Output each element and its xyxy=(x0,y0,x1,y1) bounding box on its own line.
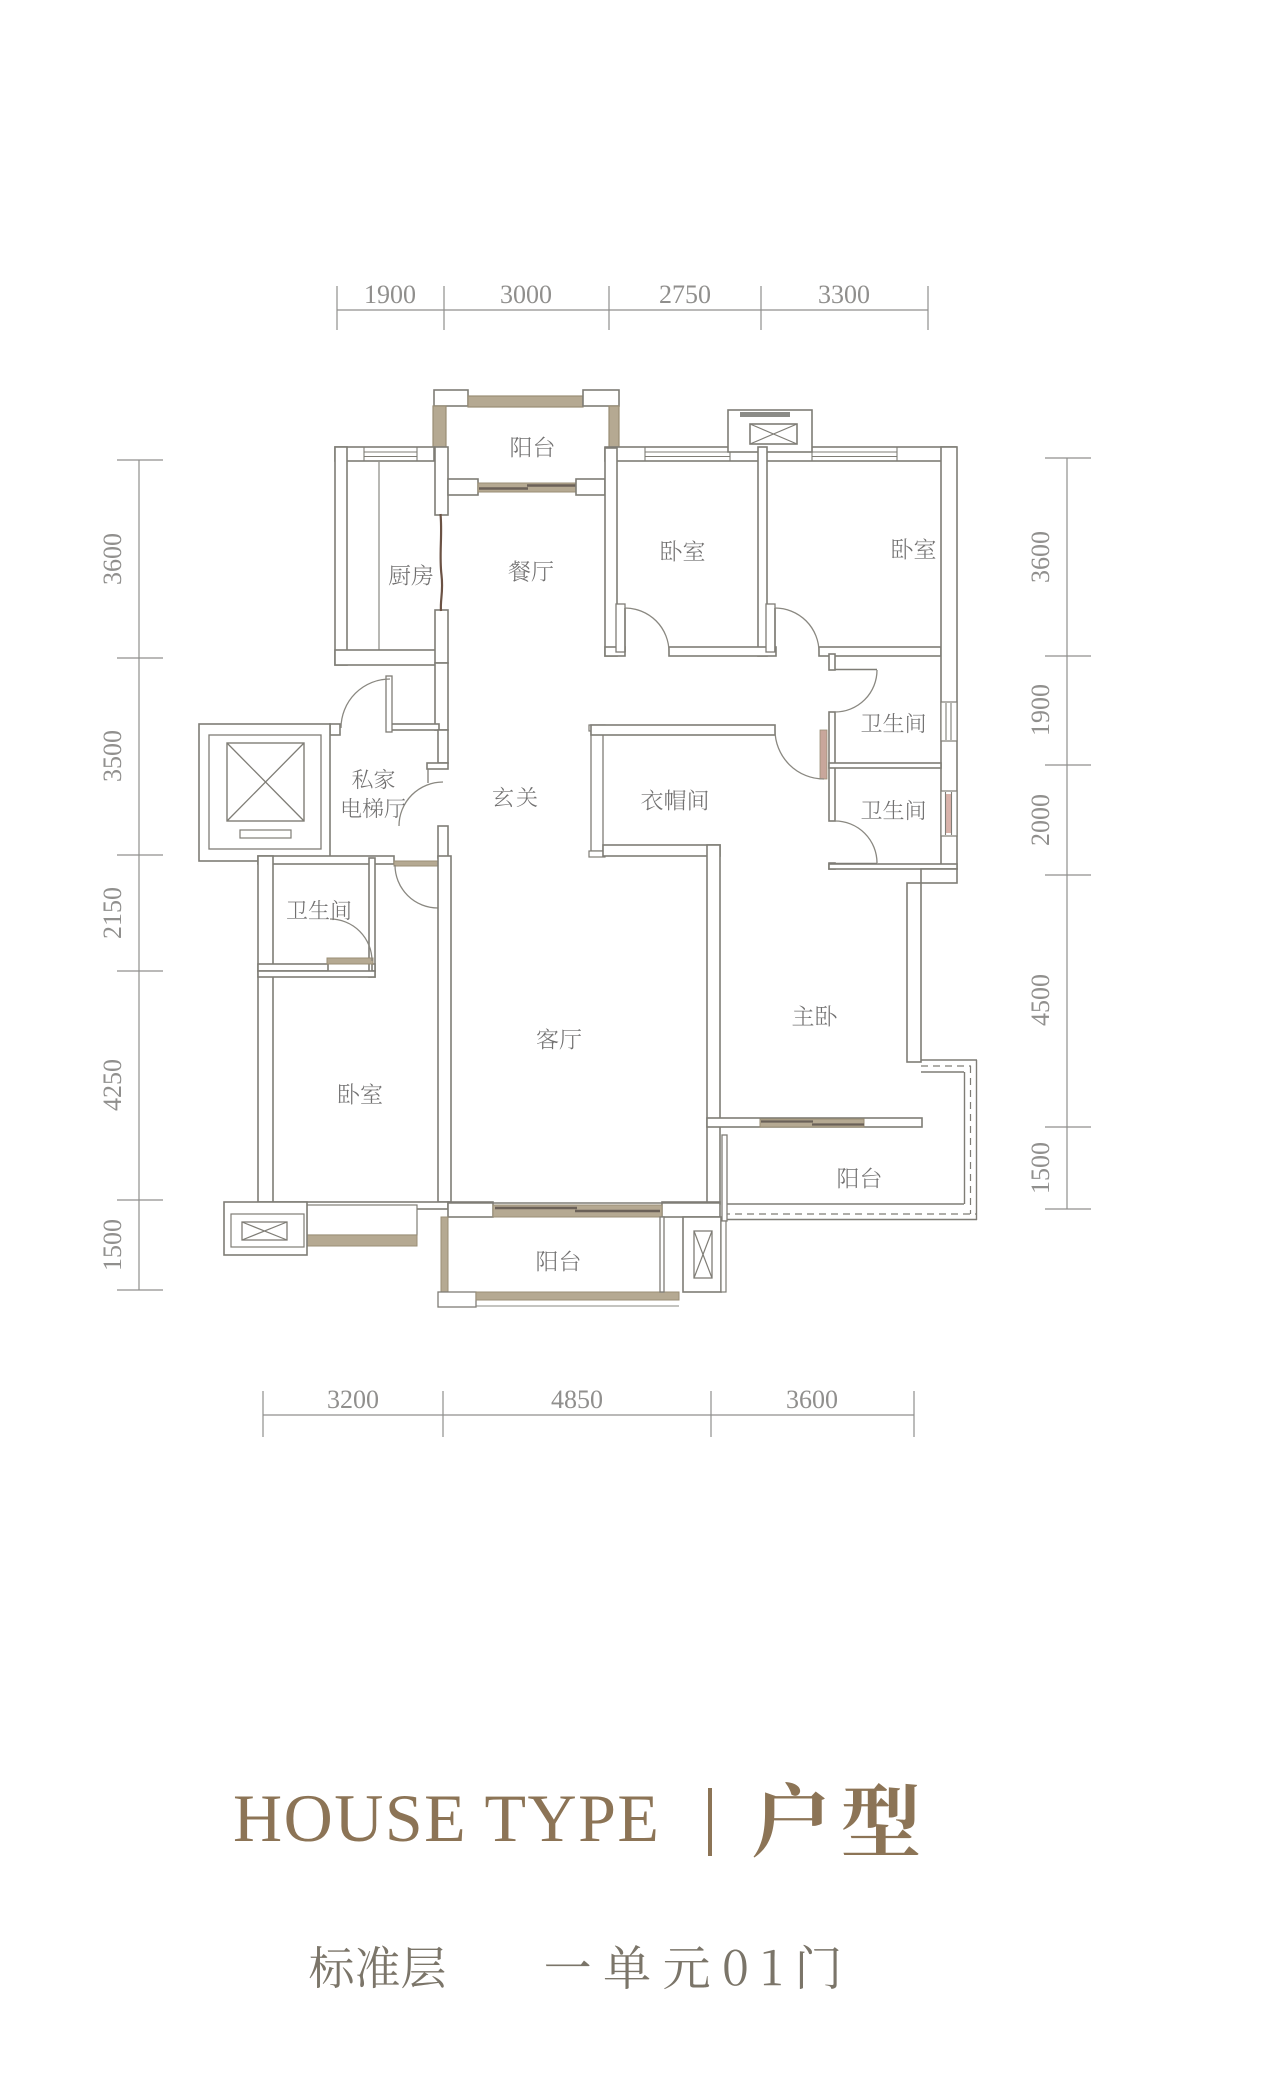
svg-text:4850: 4850 xyxy=(551,1385,603,1414)
svg-text:3300: 3300 xyxy=(818,280,870,309)
svg-text:2750: 2750 xyxy=(659,280,711,309)
svg-text:3200: 3200 xyxy=(327,1385,379,1414)
svg-text:4500: 4500 xyxy=(1026,974,1055,1026)
svg-text:3500: 3500 xyxy=(98,730,127,782)
svg-text:3000: 3000 xyxy=(500,280,552,309)
svg-text:4250: 4250 xyxy=(98,1059,127,1111)
svg-text:1500: 1500 xyxy=(98,1219,127,1271)
svg-text:1900: 1900 xyxy=(1026,684,1055,736)
svg-text:3600: 3600 xyxy=(98,533,127,585)
svg-text:HOUSE TYPE: HOUSE TYPE xyxy=(233,1780,660,1856)
svg-text:3600: 3600 xyxy=(786,1385,838,1414)
svg-text:2000: 2000 xyxy=(1026,794,1055,846)
svg-text:2150: 2150 xyxy=(98,887,127,939)
svg-text:1500: 1500 xyxy=(1026,1142,1055,1194)
svg-text:3600: 3600 xyxy=(1026,531,1055,583)
svg-text:1900: 1900 xyxy=(364,280,416,309)
